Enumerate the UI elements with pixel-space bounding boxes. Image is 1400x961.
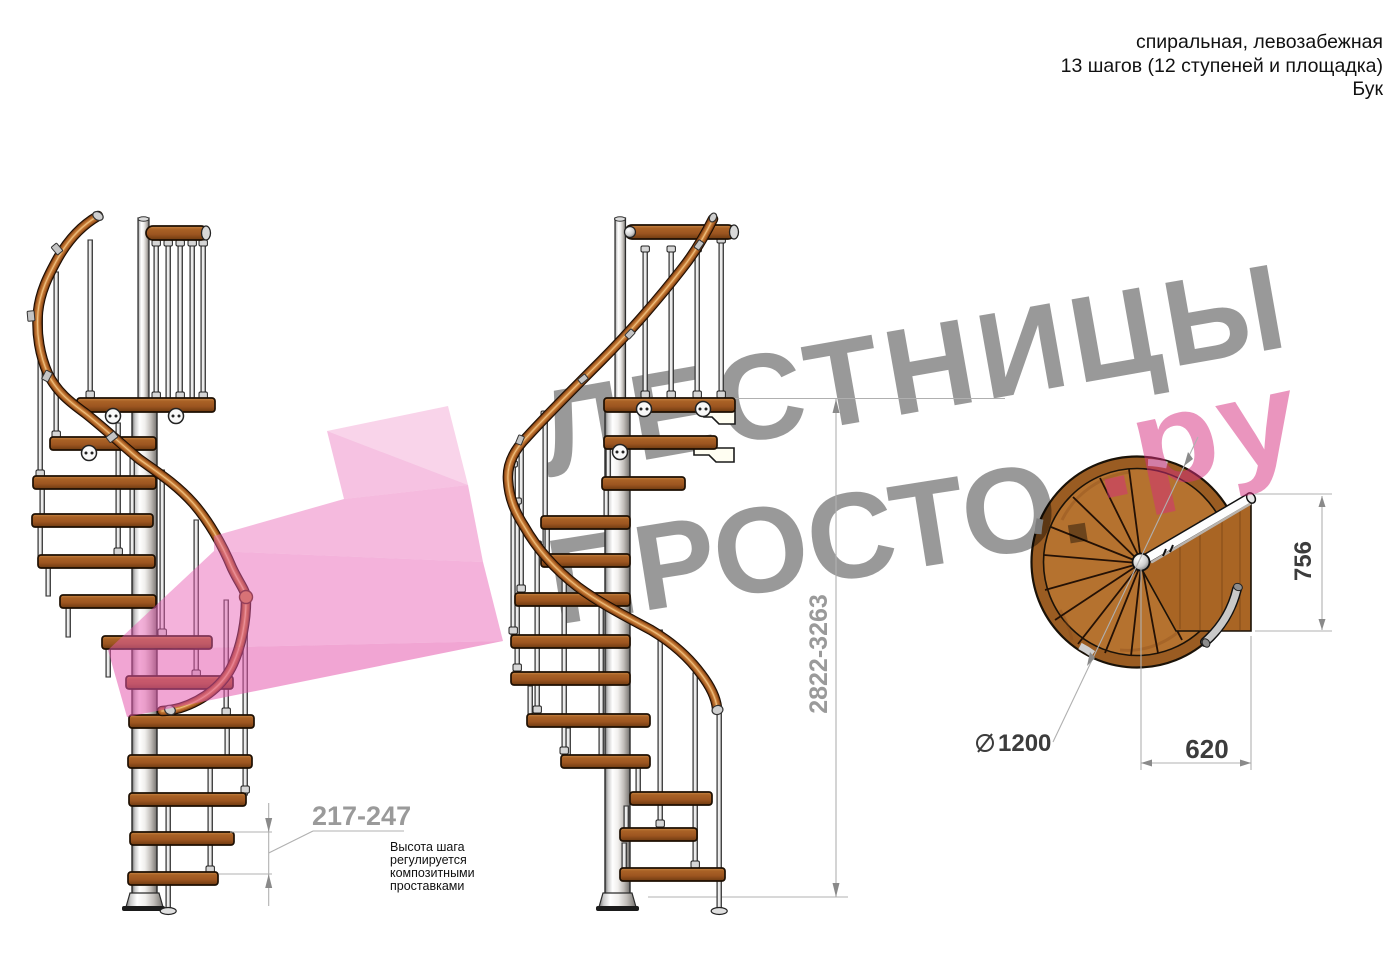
svg-text:1200: 1200 [998, 730, 1051, 757]
svg-text:спиральная, левозабежная: спиральная, левозабежная [1136, 31, 1383, 53]
svg-text:регулируется: регулируется [390, 853, 467, 867]
svg-text:13 шагов (12 ступеней и площад: 13 шагов (12 ступеней и площадка) [1061, 55, 1383, 77]
svg-text:проставками: проставками [390, 879, 464, 893]
svg-text:2822-3263: 2822-3263 [805, 594, 833, 714]
svg-text:Бук: Бук [1352, 78, 1383, 100]
svg-text:217-247: 217-247 [312, 801, 411, 831]
svg-text:620: 620 [1185, 734, 1228, 764]
svg-text:композитными: композитными [390, 866, 475, 880]
svg-text:756: 756 [1290, 541, 1317, 581]
svg-text:Высота шага: Высота шага [390, 840, 465, 854]
